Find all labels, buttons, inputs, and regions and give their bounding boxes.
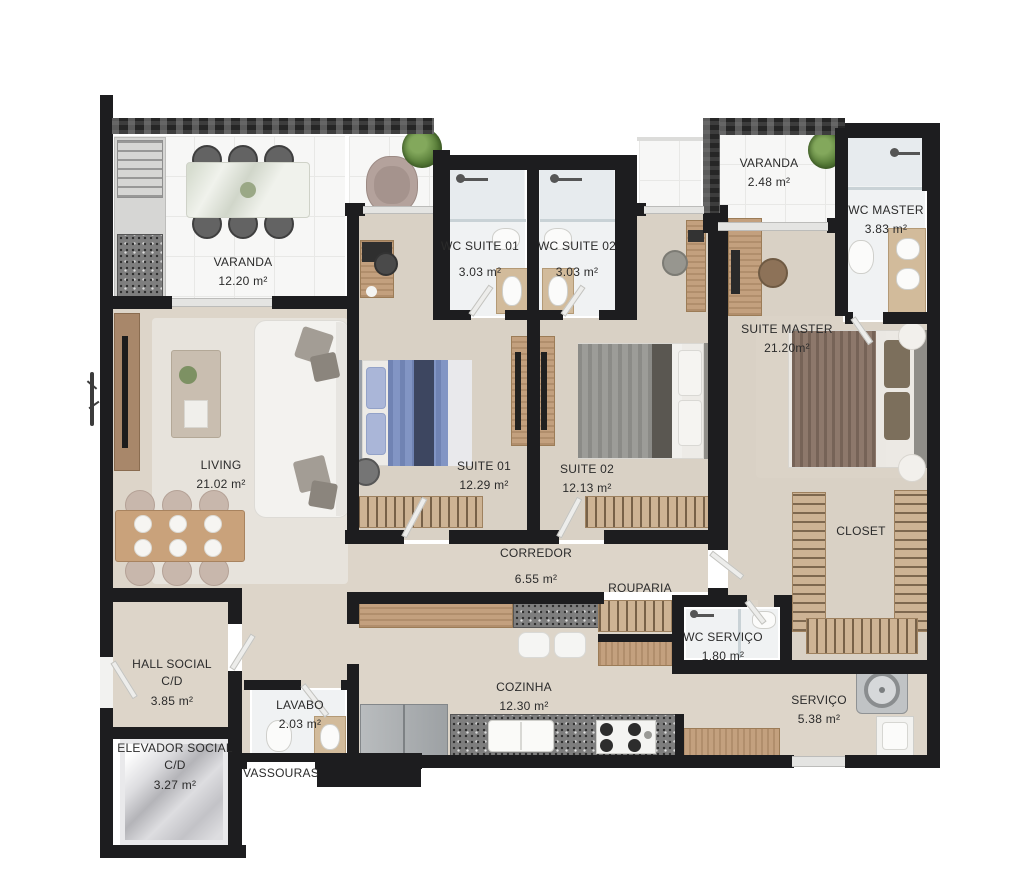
- suite-02-wardrobe-rack: [585, 496, 711, 528]
- shower-glass: [845, 187, 924, 190]
- tv: [122, 336, 128, 448]
- room-label-closet: CLOSET: [836, 523, 886, 540]
- bed-pillow: [366, 413, 386, 455]
- bed-pillow: [678, 400, 702, 446]
- shower-head-icon: [890, 148, 899, 157]
- wall: [708, 205, 728, 550]
- exterior-brick-wall: [703, 118, 845, 135]
- bed-pillow: [678, 350, 702, 396]
- wall: [827, 218, 843, 233]
- room-label-suite-02: SUITE 0212.13 m²: [560, 461, 614, 498]
- stove-burner: [600, 723, 613, 736]
- plate: [134, 539, 152, 557]
- sliding-door: [363, 206, 433, 214]
- grill-granite-top: [117, 234, 163, 298]
- wall: [112, 296, 172, 309]
- desk-accessory: [366, 286, 377, 297]
- barbecue-grill: [117, 140, 163, 198]
- glass-rail: [637, 137, 703, 141]
- wall: [317, 769, 421, 787]
- laundry-sink-basin: [882, 722, 908, 750]
- room-label-corredor: CORREDOR6.55 m²: [500, 545, 572, 589]
- room-label-varanda-main: VARANDA12.20 m²: [214, 254, 273, 291]
- monitor: [731, 250, 740, 294]
- bed-headboard: [914, 330, 928, 468]
- wall: [112, 727, 232, 739]
- wall: [838, 123, 938, 138]
- stove-burner: [628, 723, 641, 736]
- wall: [599, 310, 637, 320]
- shower-head-icon: [456, 174, 465, 183]
- plate: [204, 539, 222, 557]
- bed-blanket-gray: [578, 344, 652, 458]
- sink: [896, 268, 920, 290]
- room-label-varanda-master: VARANDA2.48 m²: [740, 155, 799, 192]
- stove-burner: [600, 739, 613, 752]
- wall: [598, 634, 676, 642]
- wall: [341, 680, 351, 690]
- rouparia-cabinet: [598, 640, 676, 666]
- plate: [169, 539, 187, 557]
- room-label-wc-suite-02: WC SUITE 023.03 m²: [538, 238, 616, 282]
- sink-divider: [520, 722, 522, 750]
- room-label-cozinha: COZINHA12.30 m²: [496, 679, 552, 716]
- round-nightstand: [898, 454, 926, 482]
- plate: [204, 515, 222, 533]
- room-label-suite-01: SUITE 0112.29 m²: [457, 458, 511, 495]
- room-label-hall-social: HALL SOCIALC/D3.85 m²: [132, 656, 212, 710]
- refrigerator-door-split: [403, 704, 405, 757]
- shower-area: [540, 165, 614, 219]
- suite-02-desk-equipment: [688, 230, 704, 242]
- wall: [845, 755, 940, 768]
- room-label-rouparia: ROUPARIA: [608, 580, 672, 597]
- room-label-wc-master: WC MASTER3.83 m²: [848, 202, 924, 239]
- wall: [100, 95, 113, 657]
- room-label-elevador-social: ELEVADOR SOCIALC/D3.27 m²: [117, 740, 233, 794]
- stove-knob: [644, 731, 652, 739]
- shower-head-icon: [896, 152, 920, 155]
- round-nightstand: [898, 322, 926, 350]
- wall: [347, 664, 359, 758]
- wall: [272, 296, 347, 309]
- shower-area: [444, 165, 524, 219]
- bed-throw: [414, 360, 434, 466]
- rouparia-rack: [598, 600, 672, 632]
- servico-counter: [682, 728, 780, 756]
- wall: [345, 530, 404, 544]
- wall: [433, 310, 471, 320]
- room-label-servico: SERVIÇO5.38 m²: [791, 692, 847, 729]
- bed-sheet: [448, 360, 472, 466]
- wall: [604, 530, 708, 544]
- kitchen-island: [513, 602, 599, 628]
- sofa-pillow: [310, 352, 341, 383]
- shower-glass: [444, 219, 526, 222]
- washer-drum-center: [879, 687, 885, 693]
- exterior-brick-wall: [703, 118, 720, 215]
- bed-throw: [652, 344, 672, 458]
- sliding-door: [718, 222, 828, 231]
- wall: [347, 208, 359, 532]
- wall: [100, 845, 246, 858]
- room-label-wc-suite-01: WC SUITE 013.03 m²: [441, 238, 519, 282]
- wall: [420, 755, 794, 768]
- bed-pillow: [366, 367, 386, 409]
- room-label-vassouras: VASSOURAS: [243, 765, 319, 782]
- wall: [527, 318, 540, 532]
- plate: [134, 515, 152, 533]
- stove-burner: [628, 739, 641, 752]
- sliding-door: [644, 206, 704, 214]
- closet-rack-right: [894, 490, 928, 632]
- tv: [541, 352, 547, 430]
- shower-head-icon: [462, 178, 488, 181]
- terrace-strip-floor: [637, 138, 703, 208]
- wall: [675, 714, 684, 758]
- wall: [449, 530, 559, 544]
- wall: [450, 155, 637, 170]
- bed-pillow: [884, 392, 910, 440]
- sofa-pillow: [308, 480, 338, 510]
- kitchen-stool: [518, 632, 550, 658]
- wall: [433, 150, 450, 318]
- sink: [896, 238, 920, 260]
- room-label-suite-master: SUITE MASTER21.20m²: [741, 321, 833, 358]
- sliding-door: [172, 298, 272, 307]
- wall: [883, 312, 937, 324]
- office-chair: [374, 252, 398, 276]
- wall: [104, 588, 242, 602]
- wall-art-branch: [90, 372, 94, 426]
- office-chair: [758, 258, 788, 288]
- kitchen-stool: [554, 632, 586, 658]
- tv: [515, 352, 521, 430]
- exterior-brick-wall: [112, 118, 434, 134]
- table-centerpiece: [240, 182, 256, 198]
- coffee-table-tray: [184, 400, 208, 428]
- office-chair: [662, 250, 688, 276]
- plate: [169, 515, 187, 533]
- shower-head-icon: [550, 174, 559, 183]
- kitchen-counter-top: [359, 602, 513, 628]
- toilet: [848, 240, 874, 274]
- floor-plan: VARANDA12.20 m² WC SUITE 013.03 m² WC SU…: [0, 0, 1024, 894]
- coffee-table-plant: [179, 366, 197, 384]
- shower-head-icon: [556, 178, 582, 181]
- room-label-wc-servico: WC SERVIÇO1.80 m²: [683, 629, 763, 666]
- shower-area: [845, 136, 922, 186]
- room-label-lavabo: LAVABO2.03 m²: [276, 697, 324, 734]
- wall: [244, 680, 301, 690]
- wall: [347, 592, 604, 604]
- closet-rack-bottom: [806, 618, 918, 654]
- servico-exterior-door: [792, 756, 845, 767]
- closet-rack-left: [792, 492, 826, 632]
- shower-glass: [540, 219, 616, 222]
- room-label-living: LIVING21.02 m²: [196, 457, 245, 494]
- wall: [615, 160, 637, 318]
- wall: [927, 128, 940, 768]
- shower-head-icon: [690, 610, 698, 618]
- lounge-chair-cushion: [374, 166, 410, 204]
